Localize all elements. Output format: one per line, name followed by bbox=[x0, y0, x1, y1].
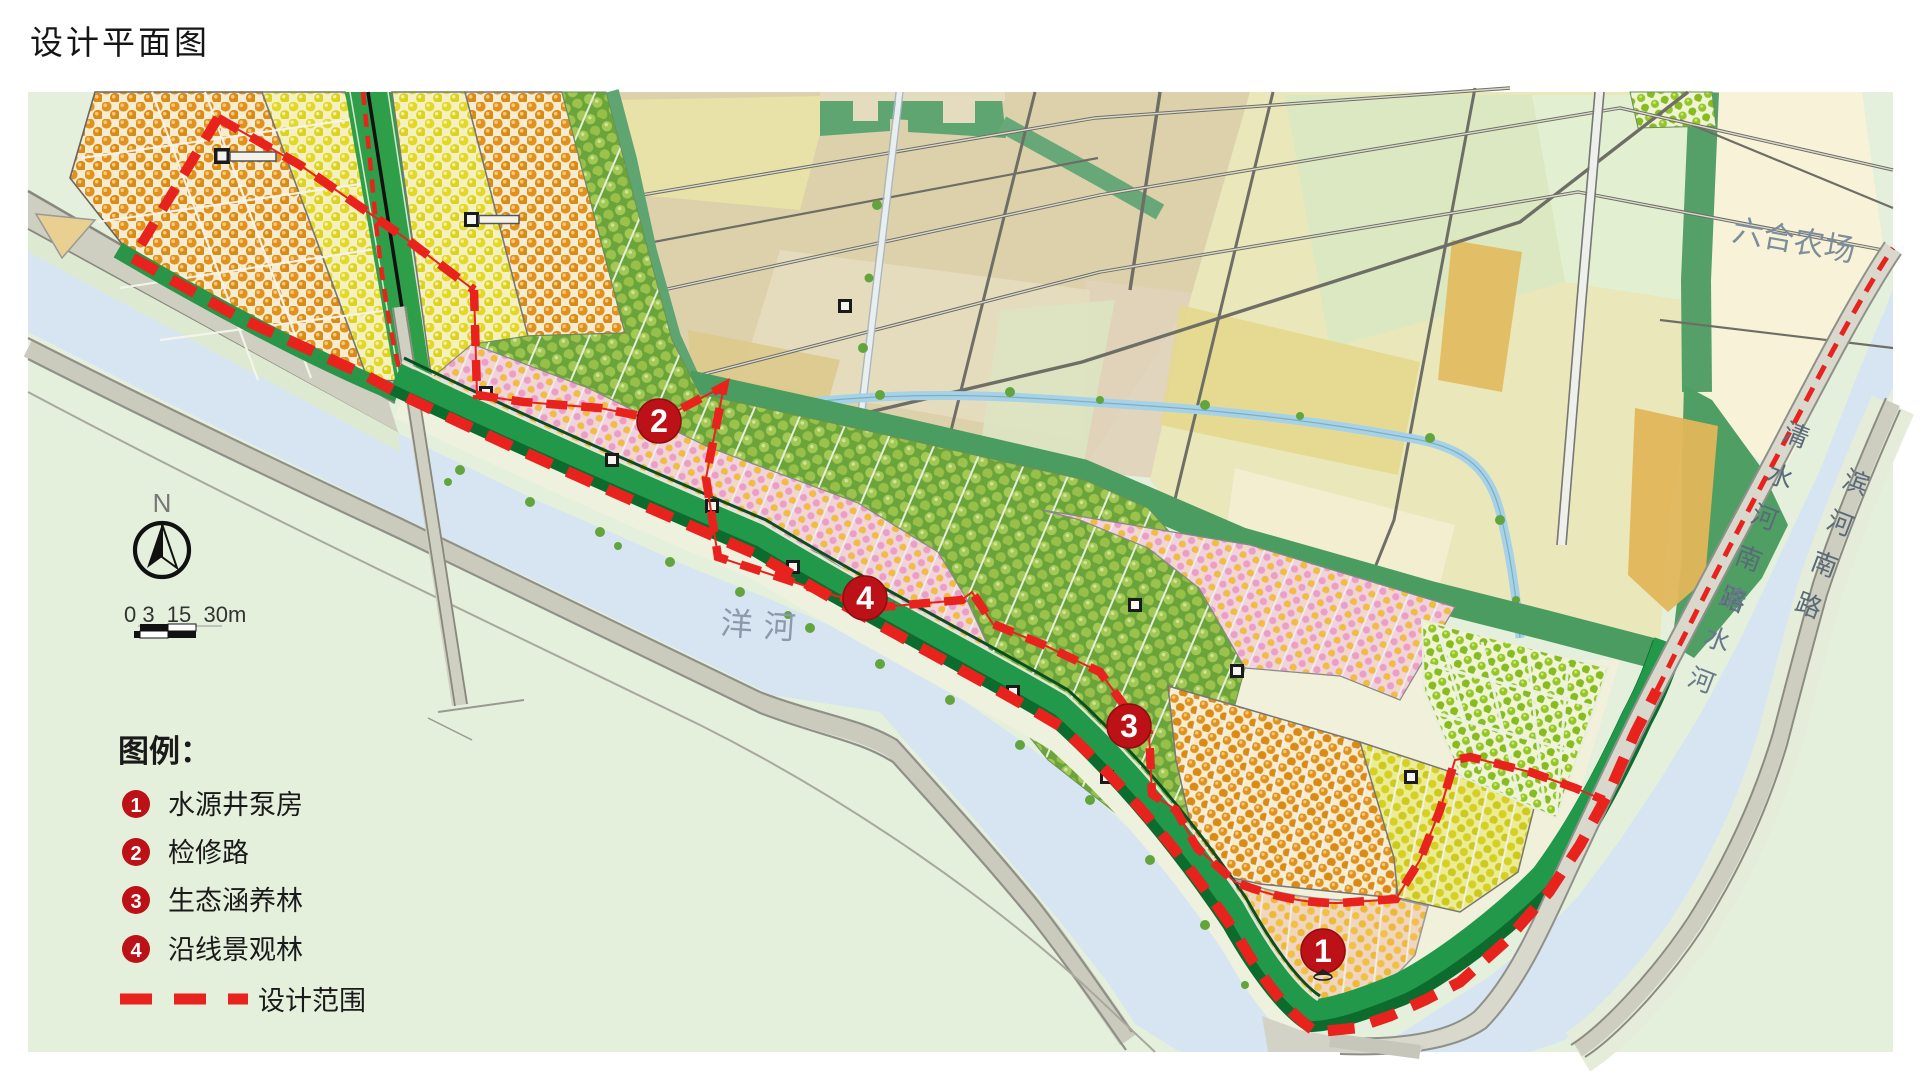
svg-text:1: 1 bbox=[1314, 933, 1332, 969]
svg-text:4: 4 bbox=[856, 580, 874, 616]
svg-text:检修路: 检修路 bbox=[168, 838, 249, 868]
svg-text:水源井泵房: 水源井泵房 bbox=[168, 790, 303, 820]
svg-text:设计平面图: 设计平面图 bbox=[30, 25, 210, 62]
svg-text:设计范围: 设计范围 bbox=[258, 986, 366, 1016]
svg-text:2: 2 bbox=[130, 843, 141, 865]
svg-text:3: 3 bbox=[1120, 708, 1138, 744]
svg-text:洋河: 洋河 bbox=[720, 605, 808, 647]
svg-text:4: 4 bbox=[130, 940, 142, 962]
svg-text:0 3 15 30m: 0 3 15 30m bbox=[124, 602, 246, 627]
svg-text:沿线景观林: 沿线景观林 bbox=[168, 935, 303, 965]
svg-text:图例：: 图例： bbox=[118, 734, 211, 769]
svg-text:生态涵养林: 生态涵养林 bbox=[168, 886, 303, 916]
svg-text:1: 1 bbox=[130, 795, 141, 817]
svg-text:3: 3 bbox=[130, 891, 141, 913]
svg-text:2: 2 bbox=[650, 403, 668, 439]
svg-text:N: N bbox=[153, 488, 172, 518]
